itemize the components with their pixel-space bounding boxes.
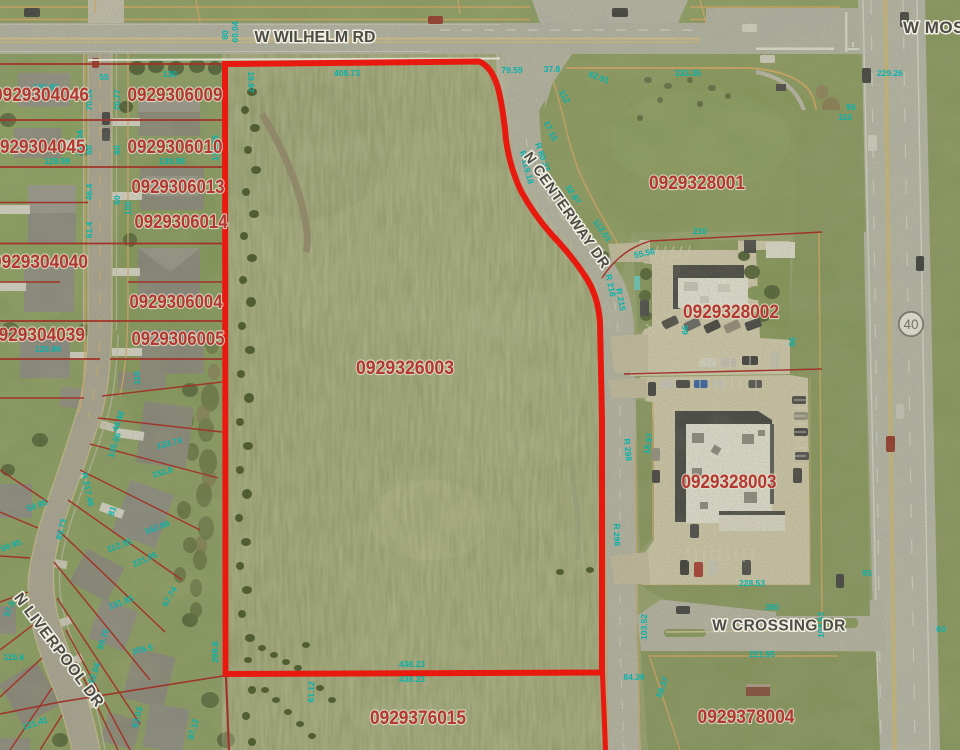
svg-text:70.77: 70.77: [112, 89, 122, 111]
svg-text:210: 210: [693, 226, 707, 236]
svg-text:0929304039: 0929304039: [0, 325, 85, 346]
svg-text:0929306005: 0929306005: [132, 329, 225, 350]
svg-text:60.04: 60.04: [230, 21, 240, 43]
svg-text:115.6: 115.6: [4, 652, 25, 662]
svg-text:110: 110: [838, 112, 852, 122]
svg-text:130: 130: [163, 69, 177, 79]
svg-text:84.39: 84.39: [623, 672, 645, 682]
svg-text:61.12: 61.12: [306, 681, 317, 703]
svg-text:350: 350: [765, 602, 779, 612]
svg-text:96: 96: [846, 102, 856, 112]
svg-text:80: 80: [220, 30, 230, 40]
svg-text:0929376015: 0929376015: [370, 708, 466, 729]
svg-text:79.59: 79.59: [501, 65, 523, 75]
svg-text:0929328003: 0929328003: [682, 472, 777, 493]
svg-text:0929378004: 0929378004: [698, 707, 795, 728]
svg-text:0929326003: 0929326003: [356, 358, 454, 379]
svg-text:228.53: 228.53: [739, 578, 765, 588]
svg-text:R 296: R 296: [612, 523, 623, 546]
svg-text:60: 60: [84, 145, 94, 155]
svg-text:0929306009: 0929306009: [128, 85, 223, 106]
svg-text:95: 95: [862, 568, 872, 578]
svg-text:0929304045: 0929304045: [0, 137, 86, 158]
svg-text:50: 50: [112, 195, 122, 205]
svg-text:438.23: 438.23: [399, 674, 425, 684]
svg-text:0929304046: 0929304046: [0, 85, 89, 106]
svg-text:60: 60: [112, 145, 122, 155]
svg-text:0929304040: 0929304040: [0, 252, 88, 273]
svg-text:0929328002: 0929328002: [683, 302, 779, 323]
svg-text:110: 110: [132, 371, 142, 385]
svg-text:61.4: 61.4: [84, 221, 94, 238]
svg-text:37.8: 37.8: [544, 64, 561, 74]
svg-text:19.97: 19.97: [246, 71, 256, 93]
svg-text:409.73: 409.73: [334, 68, 360, 78]
svg-text:0929306014: 0929306014: [135, 212, 228, 233]
svg-text:55: 55: [99, 72, 109, 82]
svg-text:229.26: 229.26: [877, 68, 903, 78]
svg-text:0929328001: 0929328001: [649, 173, 745, 194]
svg-text:0929306010: 0929306010: [128, 137, 223, 158]
svg-text:0929306013: 0929306013: [132, 177, 225, 198]
svg-text:W MOSS: W MOSS: [903, 18, 960, 37]
svg-text:60: 60: [936, 624, 946, 634]
svg-text:46.4: 46.4: [84, 183, 94, 200]
svg-text:0929306004: 0929306004: [130, 292, 223, 313]
svg-text:66: 66: [680, 325, 690, 335]
svg-text:221.55: 221.55: [749, 649, 775, 659]
svg-text:W WILHELM RD: W WILHELM RD: [255, 29, 376, 46]
svg-text:299.8: 299.8: [210, 641, 220, 663]
svg-text:R 298: R 298: [622, 438, 634, 462]
svg-text:103.52: 103.52: [639, 614, 649, 640]
svg-text:438.23: 438.23: [399, 659, 425, 669]
svg-text:100: 100: [123, 201, 133, 215]
svg-text:W CROSSING DR: W CROSSING DR: [712, 618, 846, 635]
svg-text:233.35: 233.35: [675, 68, 701, 78]
svg-text:66: 66: [787, 337, 797, 347]
